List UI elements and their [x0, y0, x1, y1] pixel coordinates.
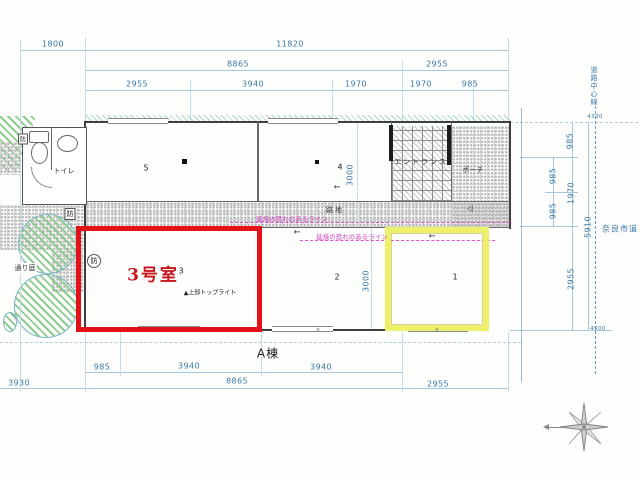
toilet-bowl [31, 142, 48, 164]
extension-left-boundary [20, 40, 21, 392]
label-fire-spread-line-1: 延焼の恐れのあるライン [256, 213, 328, 223]
dim-room2-3000: 3000 [362, 270, 371, 292]
floor-plan: 1800118208865295529553940197019709859859… [0, 0, 640, 480]
door-arrow-room1: ← [429, 232, 436, 241]
dimline-top-row1 [20, 50, 508, 51]
road-center-line [595, 106, 596, 374]
room-num-3: 3 [178, 267, 183, 276]
dim-right-5910: 5910 [584, 216, 593, 238]
dimline-room2-3000 [371, 226, 372, 330]
dim-bot-985: 985 [94, 363, 110, 372]
east-wall-north-band [509, 121, 511, 229]
dim-top-1970-b: 1970 [410, 80, 432, 89]
fireproof-mark-3: 防 [87, 254, 101, 268]
room-num-1: 1 [452, 273, 457, 282]
dim-right-985-b: 985 [549, 168, 558, 184]
dim-level-4330: 4330 [587, 114, 603, 120]
dim-top-985: 985 [462, 80, 478, 89]
dim-level-4500: 4500 [590, 326, 606, 332]
label-building-a: A棟 [257, 345, 279, 362]
fireproof-mark-2: 防 [65, 208, 76, 220]
room-num-5: 5 [143, 164, 148, 173]
window-room4-north [268, 118, 338, 124]
dim-top-8865: 8865 [227, 60, 249, 69]
dimline-bottom-row1 [85, 372, 402, 373]
garden-tree-2 [14, 274, 78, 338]
pillar-room4 [315, 160, 319, 164]
wall-mark-b: × [434, 327, 439, 334]
label-room3-stamp: 3号室 [127, 261, 179, 286]
room-num-4: 4 [337, 163, 342, 172]
north-arrow-head [543, 424, 549, 430]
ext-vb-508 [508, 332, 509, 392]
dimtick-right-157 [520, 157, 578, 158]
label-passage-garden: 通り庭 [14, 263, 37, 273]
paving-topleft [0, 142, 20, 175]
label-entrance: エントランス [394, 157, 448, 167]
alley-north-wall [85, 201, 510, 202]
room-1-highlight[interactable] [385, 227, 489, 331]
dimtick-right-226 [520, 226, 578, 227]
window-room5-north [108, 118, 168, 124]
wall-entrance-porch [451, 122, 452, 202]
dim-top-2955-right: 2955 [426, 60, 448, 69]
wall-mark-a: × [315, 327, 320, 334]
dimline-top-row3 [85, 90, 508, 91]
dim-top-11820: 11820 [276, 40, 303, 49]
dim-top-1800: 1800 [42, 40, 64, 49]
dim-top-2955: 2955 [126, 80, 148, 89]
toilet-partition [51, 128, 52, 170]
label-porch: ポーチ [463, 165, 484, 175]
dim-right-985-a: 985 [566, 133, 575, 149]
window-room2-south [272, 326, 333, 332]
door-arrow-room4: ← [334, 183, 341, 192]
paving-porch [452, 126, 509, 227]
ext-vb-85 [85, 332, 86, 392]
road-boundary-line [521, 108, 522, 382]
site-boundary-south [0, 342, 521, 343]
toilet-sink [57, 135, 78, 152]
compass-rose-icon [558, 401, 610, 453]
ext-vb-120 [120, 332, 121, 376]
dim-bot-3940-b: 3940 [310, 363, 332, 372]
ext-v-508 [508, 38, 509, 122]
dim-right-1970: 1970 [567, 182, 576, 204]
ext-v-85 [85, 38, 86, 122]
label-nara-city-road: 奈良市道 [602, 224, 638, 235]
dim-bot-3930: 3930 [8, 379, 30, 388]
ext-v-402 [402, 60, 403, 122]
room-num-2: 2 [334, 273, 339, 282]
label-toilet: トイレ [54, 166, 75, 176]
dim-bot-2955: 2955 [427, 380, 449, 389]
fireproof-mark-1: 防 [18, 134, 28, 145]
door-arrow-room2: ← [294, 228, 301, 237]
dimline-top-row2 [85, 70, 508, 71]
label-alley: 路地 [326, 205, 344, 215]
dimline-room4-3000 [357, 122, 358, 228]
pillar-room5 [182, 159, 187, 164]
dim-top-3940: 3940 [242, 80, 264, 89]
door-swing-porch: ◁ [467, 204, 473, 213]
dim-right-985-c: 985 [549, 203, 558, 219]
entrance-jamb-left [389, 125, 393, 161]
label-fire-spread-line-2: 延焼の恐れのあるライン [316, 231, 388, 241]
dim-bot-3940-a: 3940 [178, 362, 200, 371]
dim-room4-3000: 3000 [346, 164, 355, 186]
ext-vb-402 [402, 332, 403, 392]
wall-room5-room4 [257, 122, 259, 202]
dim-right-2955: 2955 [567, 268, 576, 290]
garden-sprout [3, 312, 17, 332]
dim-top-1970-a: 1970 [345, 80, 367, 89]
label-road-centerline: 道路中心線 [589, 66, 599, 106]
label-toplight: ▲上部トップライト [184, 288, 237, 297]
dim-bot-8865: 8865 [226, 377, 248, 386]
